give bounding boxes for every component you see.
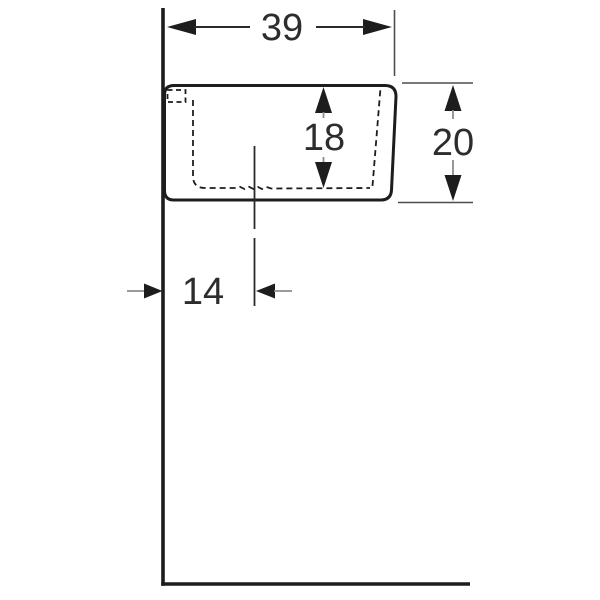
dimension-basin-depth-label: 18 xyxy=(303,117,345,159)
basin-outline xyxy=(165,86,397,201)
dimension-height: 20 xyxy=(398,83,474,203)
dimension-drawing-canvas: 39 18 20 14 xyxy=(0,0,600,600)
dimension-drain-offset-label: 14 xyxy=(182,271,224,313)
dimension-width-label: 39 xyxy=(261,7,303,49)
arrow-right-icon xyxy=(144,284,163,299)
washbasin-profile-drawing: 39 18 20 14 xyxy=(0,0,600,600)
dimension-width: 39 xyxy=(167,7,395,76)
arrow-up-icon xyxy=(445,85,462,111)
dimension-drain-offset: 14 xyxy=(127,271,292,313)
arrow-left-icon xyxy=(167,19,196,35)
arrow-left-icon xyxy=(256,284,275,299)
arrow-down-icon xyxy=(445,175,462,201)
dimension-height-label: 20 xyxy=(432,122,474,164)
arrow-right-icon xyxy=(363,19,392,35)
